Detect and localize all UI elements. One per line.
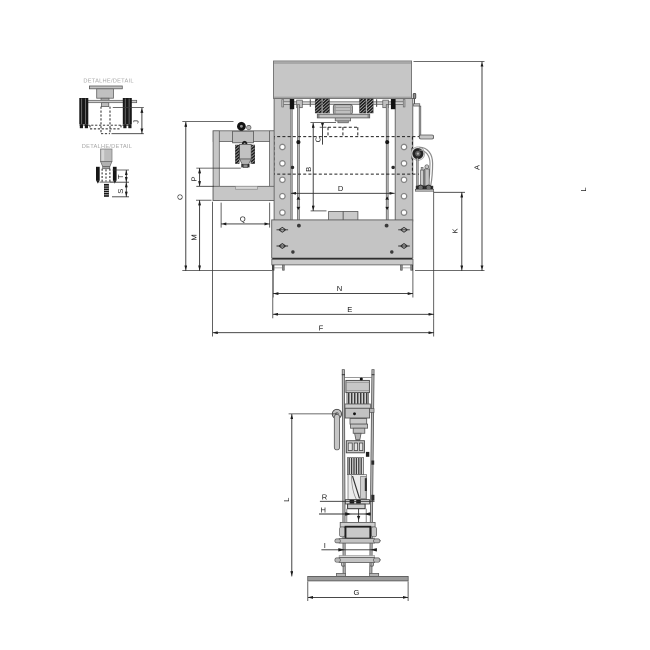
svg-text:F: F bbox=[319, 323, 324, 332]
svg-text:DETALHE/DETAIL: DETALHE/DETAIL bbox=[83, 78, 133, 84]
svg-text:B: B bbox=[304, 167, 313, 172]
svg-text:L: L bbox=[282, 498, 291, 502]
svg-text:E: E bbox=[347, 305, 352, 314]
svg-text:J: J bbox=[132, 120, 141, 124]
svg-text:K: K bbox=[451, 228, 460, 233]
svg-text:L: L bbox=[579, 187, 588, 191]
svg-text:H: H bbox=[321, 505, 326, 514]
svg-text:N: N bbox=[337, 284, 342, 293]
svg-text:S: S bbox=[116, 189, 125, 194]
svg-text:I: I bbox=[324, 541, 326, 550]
svg-text:T: T bbox=[116, 174, 125, 179]
svg-text:R: R bbox=[322, 492, 328, 501]
svg-text:D: D bbox=[338, 184, 344, 193]
svg-text:C: C bbox=[313, 136, 322, 142]
svg-text:P: P bbox=[189, 176, 198, 181]
svg-text:Q: Q bbox=[240, 215, 246, 224]
svg-text:O: O bbox=[176, 194, 185, 200]
svg-text:M: M bbox=[189, 234, 198, 240]
svg-text:A: A bbox=[472, 164, 481, 170]
svg-text:G: G bbox=[354, 588, 360, 597]
